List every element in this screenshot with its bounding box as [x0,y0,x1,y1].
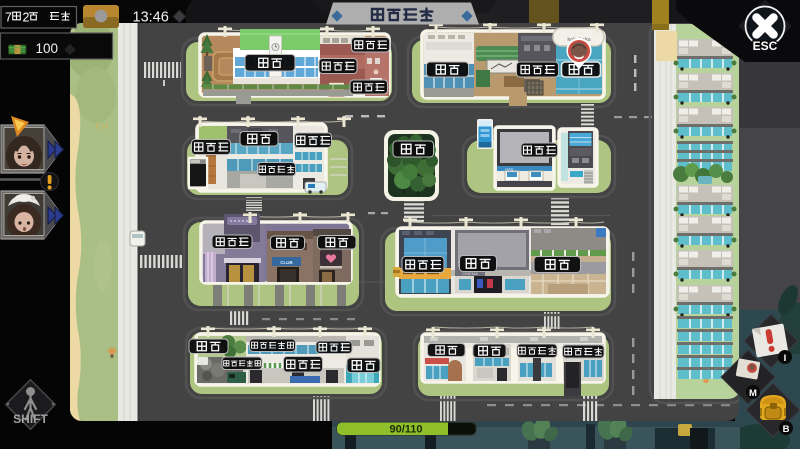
svg-text:2: 2 [23,11,30,25]
svg-text:13:46: 13:46 [133,10,169,26]
svg-text:7: 7 [5,11,12,25]
svg-text:CLUB: CLUB [280,260,293,265]
svg-text:SHIFT: SHIFT [13,412,48,426]
svg-text:M: M [749,388,757,399]
svg-text:90/110: 90/110 [389,424,422,436]
svg-text:100: 100 [36,41,59,56]
svg-text:ESC: ESC [753,39,778,53]
svg-text:B: B [783,424,790,435]
svg-text:I: I [784,353,787,364]
